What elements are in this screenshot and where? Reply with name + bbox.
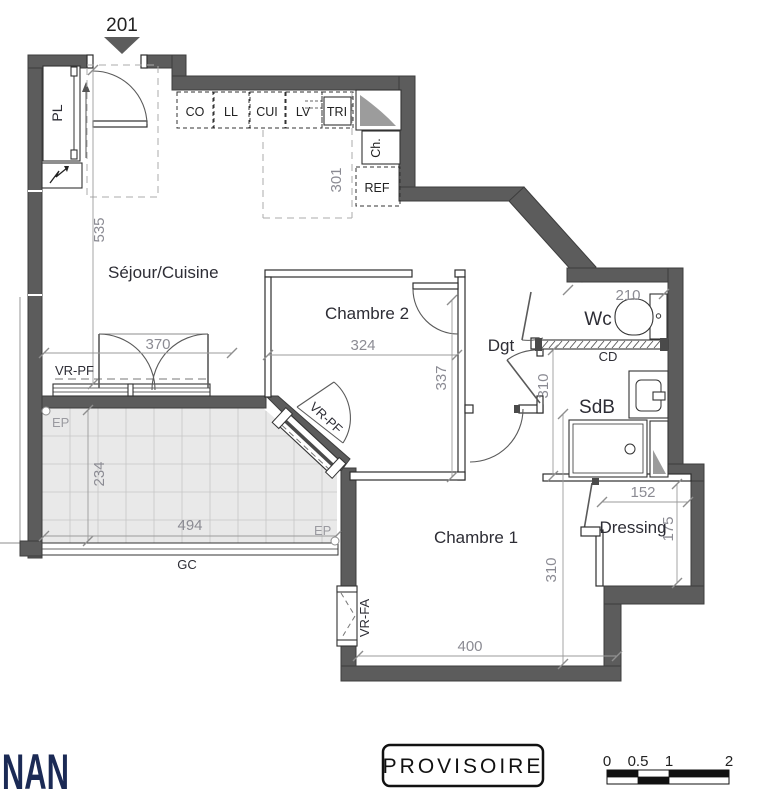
french-window-mullion bbox=[128, 384, 133, 396]
unit-number: 201 bbox=[106, 15, 138, 36]
label-cd: CD bbox=[599, 349, 618, 364]
vrfa-window-cap-top bbox=[337, 586, 357, 592]
label-ep-right: EP bbox=[314, 523, 331, 538]
dim-535: 535 bbox=[91, 217, 108, 242]
wall-bottom bbox=[341, 666, 621, 681]
scale-seg-5 bbox=[638, 777, 669, 784]
wall-railing-cap bbox=[20, 541, 42, 556]
washbasin-tap bbox=[653, 392, 665, 400]
dim-494: 494 bbox=[177, 517, 202, 534]
floor-plan: 535 301 370 324 337 234 494 400 310 310 … bbox=[0, 0, 765, 800]
entrance-triangle-icon bbox=[104, 37, 140, 54]
partition-chambre2-top-stub bbox=[455, 270, 465, 277]
dressing-door-stub bbox=[581, 527, 600, 536]
label-pl: PL bbox=[49, 104, 65, 121]
ep-marker-left-icon bbox=[42, 407, 50, 415]
dim-324: 324 bbox=[350, 337, 375, 354]
scale-1: 1 bbox=[665, 753, 673, 770]
dim-152: 152 bbox=[630, 484, 655, 501]
electrical-panel bbox=[42, 163, 82, 188]
label-vrpf-sejour: VR-PF bbox=[55, 363, 94, 378]
stamp-text: PROVISOIRE bbox=[383, 755, 544, 778]
label-tri: TRI bbox=[327, 105, 347, 119]
chambre2-door-arc bbox=[413, 289, 458, 334]
dim-400: 400 bbox=[457, 638, 482, 655]
label-wc: Wc bbox=[584, 309, 611, 330]
label-ep-left: EP bbox=[52, 415, 69, 430]
entry-arrow-head bbox=[82, 82, 90, 92]
entrance-jamb-left bbox=[87, 55, 93, 68]
label-sejour: Séjour/Cuisine bbox=[108, 263, 219, 282]
dim-301: 301 bbox=[328, 167, 345, 192]
entrance-jamb-right bbox=[141, 55, 147, 68]
wall-right-upper bbox=[668, 268, 683, 464]
chambre1-door-hinge bbox=[514, 405, 520, 413]
vrfa-window-frame bbox=[337, 586, 357, 646]
partition-chambre2-bottom bbox=[350, 472, 465, 480]
partition-chambre2-right bbox=[458, 277, 465, 480]
wall-balcony-sill-band bbox=[42, 396, 266, 408]
dim-210: 210 bbox=[615, 287, 640, 304]
vrfa-window-cap-bottom bbox=[337, 640, 357, 646]
scale-0: 0 bbox=[603, 753, 611, 770]
entrance-marker: 201 bbox=[104, 15, 140, 54]
footer: NAN PROVISOIRE 0 0.5 1 2 bbox=[2, 743, 733, 799]
wall-kitchen-top bbox=[172, 76, 415, 90]
chambre1-door-arc bbox=[470, 409, 523, 462]
dim-310-chambre1: 310 bbox=[543, 557, 560, 582]
label-chambre2: Chambre 2 bbox=[325, 304, 409, 323]
dim-234: 234 bbox=[91, 461, 108, 486]
wc-door-leaf bbox=[522, 292, 531, 340]
scale-05: 0.5 bbox=[628, 753, 649, 770]
dim-337: 337 bbox=[433, 365, 450, 390]
scale-seg-3 bbox=[669, 770, 729, 777]
dressing-door-hinge bbox=[592, 478, 599, 485]
scale-seg-1 bbox=[607, 770, 638, 777]
label-co: CO bbox=[186, 105, 205, 119]
ep-marker-right-icon bbox=[331, 537, 339, 545]
wall-entry-horizontal bbox=[399, 187, 524, 201]
dim-310-sdb: 310 bbox=[535, 373, 552, 398]
label-vrfa: VR-FA bbox=[357, 599, 372, 638]
wall-wc-top bbox=[567, 268, 683, 282]
wall-left bbox=[28, 55, 42, 558]
scale-seg-6 bbox=[669, 777, 729, 784]
scale-2: 2 bbox=[725, 753, 733, 770]
label-sdb: SdB bbox=[579, 397, 615, 418]
label-lv: LV bbox=[296, 105, 311, 119]
entry-zone-dash bbox=[87, 65, 158, 197]
dim-370: 370 bbox=[145, 336, 170, 353]
wall-bottom-step bbox=[604, 586, 704, 604]
closet-pl-block-bottom bbox=[71, 150, 77, 159]
label-chambre1: Chambre 1 bbox=[434, 528, 518, 547]
partition-chambre1-door-stub-left bbox=[465, 405, 473, 413]
dressing-door-leaf bbox=[584, 483, 592, 530]
cd-strip bbox=[538, 340, 668, 349]
closet-pl-block-top bbox=[71, 67, 77, 76]
cd-cap-right bbox=[660, 338, 668, 351]
chambre2-door-leaf bbox=[413, 283, 458, 289]
label-dressing: Dressing bbox=[599, 518, 666, 537]
partition-chambre2-top bbox=[265, 270, 412, 277]
toilet-bowl bbox=[615, 299, 653, 335]
scale-seg-2 bbox=[638, 770, 669, 777]
entrance-door-arc bbox=[93, 71, 147, 124]
partition-chambre2-left bbox=[265, 277, 271, 397]
label-ll: LL bbox=[224, 105, 238, 119]
label-cui: CUI bbox=[256, 105, 278, 119]
label-ch: Ch. bbox=[369, 138, 383, 157]
partition-dressing-west bbox=[596, 530, 603, 586]
scale-bar: 0 0.5 1 2 bbox=[603, 753, 733, 784]
label-gc: GC bbox=[177, 557, 197, 572]
label-dgt: Dgt bbox=[488, 336, 515, 355]
label-ref: REF bbox=[365, 181, 390, 195]
exterior-boundary-line bbox=[0, 297, 20, 543]
entrance-door-leaf bbox=[93, 121, 147, 127]
cd-cap-left bbox=[535, 338, 542, 351]
scale-seg-4 bbox=[607, 777, 638, 784]
builder-logo: NAN bbox=[2, 743, 69, 799]
